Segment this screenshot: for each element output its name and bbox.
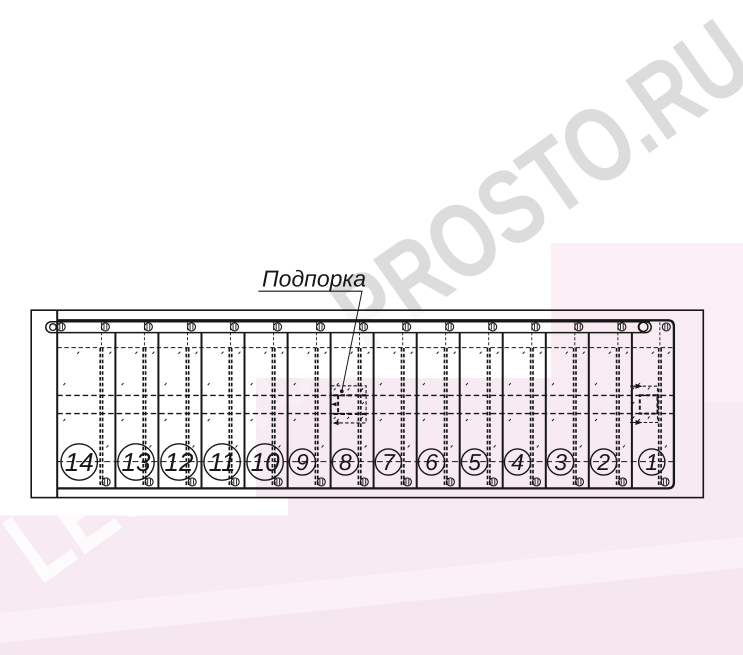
svg-text:4: 4 xyxy=(511,449,524,475)
svg-text:13: 13 xyxy=(122,447,151,477)
svg-text:10: 10 xyxy=(251,447,280,477)
svg-text:12: 12 xyxy=(165,447,194,477)
svg-text:9: 9 xyxy=(296,449,309,475)
svg-text:5: 5 xyxy=(468,449,481,475)
svg-text:14: 14 xyxy=(65,447,94,477)
svg-text:2: 2 xyxy=(596,449,610,475)
svg-text:7: 7 xyxy=(382,449,396,475)
svg-text:8: 8 xyxy=(339,449,352,475)
svg-text:Подпорка: Подпорка xyxy=(262,266,366,292)
svg-text:3: 3 xyxy=(554,449,567,475)
svg-text:11: 11 xyxy=(209,447,236,477)
svg-text:1: 1 xyxy=(645,449,658,475)
svg-text:6: 6 xyxy=(425,449,438,475)
